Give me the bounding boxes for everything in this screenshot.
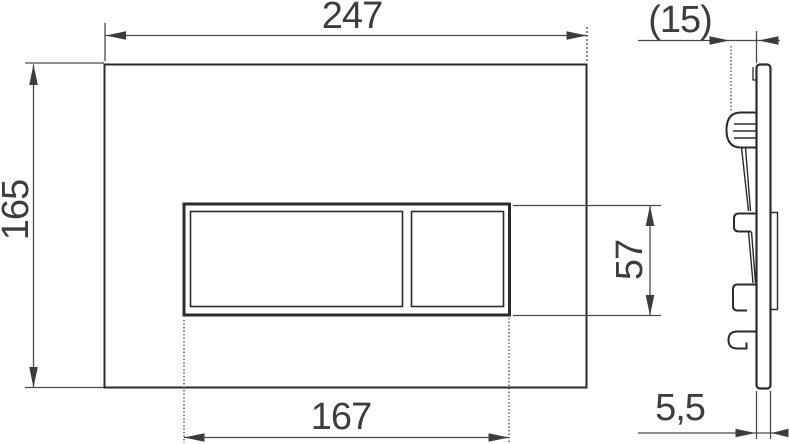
arrowhead-left (106, 31, 127, 40)
dim-button-height-label: 57 (611, 240, 649, 280)
spring-leaf-upper (742, 148, 751, 212)
dim-overall-height-label: 165 (0, 180, 35, 240)
arrowhead-left (736, 429, 756, 438)
mounting-hook-bottom (729, 332, 757, 349)
dim-plate-thickness-label: 5,5 (655, 389, 705, 427)
front-view (105, 65, 587, 388)
mounting-clip-middle (734, 214, 756, 232)
arrowhead-top (29, 65, 38, 86)
arrowhead-right (489, 433, 510, 442)
button-recess (184, 204, 510, 315)
arrowhead-right (759, 36, 779, 45)
spring-leaf-lower (749, 232, 756, 284)
arrowhead-left (184, 433, 205, 442)
side-profile-body (757, 65, 771, 389)
arrowhead-right (567, 31, 588, 40)
dim-overall-width-label: 247 (322, 0, 382, 35)
dim-installation-depth (638, 31, 780, 112)
mounting-clip-lower (733, 285, 757, 311)
arrowhead-top (646, 206, 655, 227)
arrowhead-left (710, 36, 730, 45)
side-view (727, 65, 778, 389)
small-flush-button (412, 212, 504, 307)
dim-installation-depth-label: (15) (648, 1, 712, 39)
drawing-sheet: 247 165 167 57 (15) 5,5 (0, 0, 789, 444)
mounting-clip-top (727, 113, 758, 148)
arrowhead-bottom (646, 295, 655, 316)
dim-button-width-label: 167 (311, 398, 371, 436)
plate-outline (105, 65, 587, 388)
arrowhead-bottom (29, 367, 38, 388)
drawing-canvas (0, 0, 789, 444)
arrowhead-right (772, 429, 789, 438)
large-flush-button (191, 212, 403, 307)
mounting-clip-top-slots (733, 124, 757, 138)
